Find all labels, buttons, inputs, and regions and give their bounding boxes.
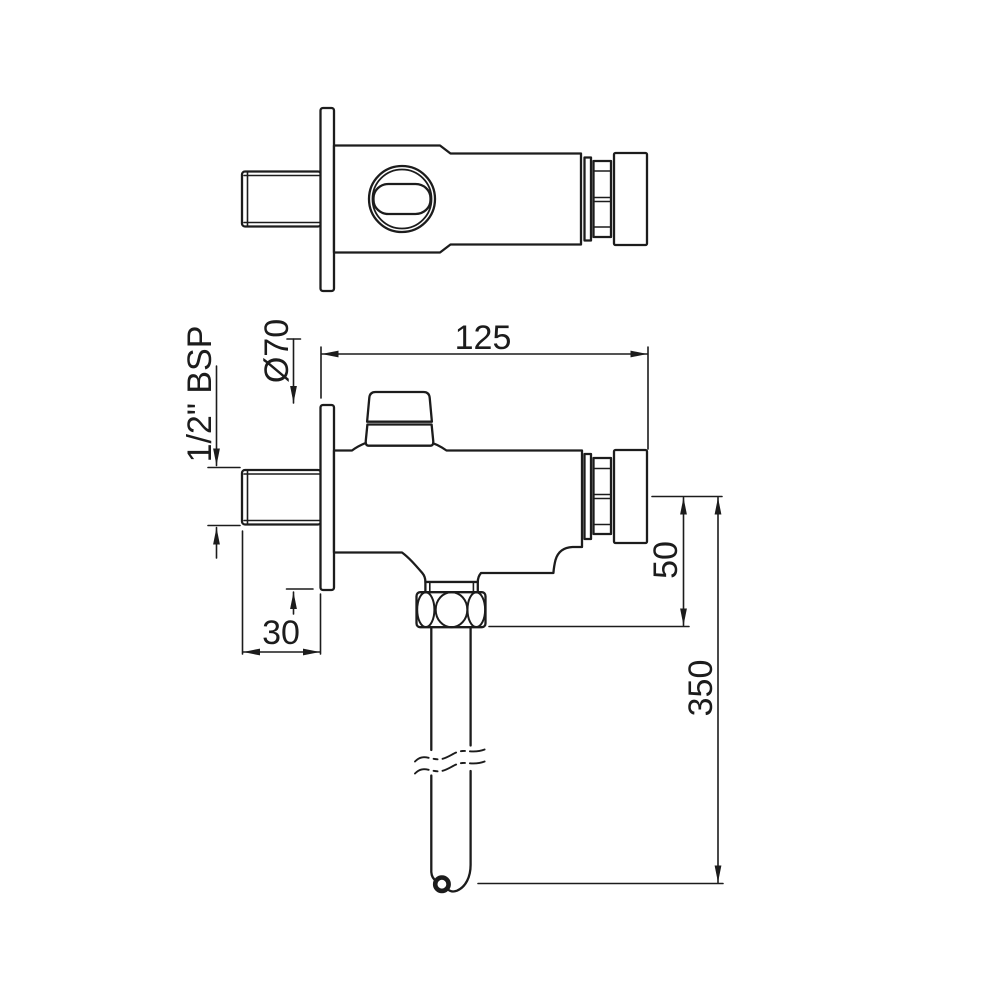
actuator-cap-top <box>369 166 435 232</box>
inlet-thread-top <box>242 172 321 227</box>
lock-nut-body <box>594 161 612 237</box>
button-step-ring-top <box>585 158 592 241</box>
inlet-thread-body <box>242 172 321 227</box>
outlet-connector-plate <box>425 582 477 592</box>
technical-drawing-canvas: 125 Ø70 1/2" BSP 30 50 350 <box>0 0 1000 1000</box>
button-lock-nut-top <box>594 161 612 237</box>
dimension-text-overall-length: 125 <box>455 319 512 357</box>
wall-flange-top <box>321 108 335 291</box>
inlet-thread-body <box>242 470 321 525</box>
dimension-text-axis-to-outlet: 50 <box>647 541 685 579</box>
dimension-text-inlet-projection: 30 <box>262 614 300 652</box>
button-step-ring-side <box>585 454 592 539</box>
dimension-text-pipe-length: 350 <box>682 660 720 717</box>
wall-flange-side <box>321 405 335 590</box>
outlet-hex-nut <box>417 592 486 627</box>
button-lock-nut-side <box>594 458 612 534</box>
push-button-side <box>614 450 647 543</box>
actuator-cap-side <box>366 392 434 446</box>
cap-knob <box>367 392 432 422</box>
cap-knob-slot <box>374 184 431 214</box>
cap-base-flare <box>366 425 434 446</box>
push-button-top <box>614 153 647 245</box>
lock-nut-body <box>594 458 612 534</box>
dimension-text-flange-diameter: Ø70 <box>258 319 296 383</box>
dimension-text-inlet-thread: 1/2" BSP <box>181 326 219 463</box>
outlet-assembly <box>417 582 486 627</box>
inlet-thread-side <box>242 470 321 525</box>
